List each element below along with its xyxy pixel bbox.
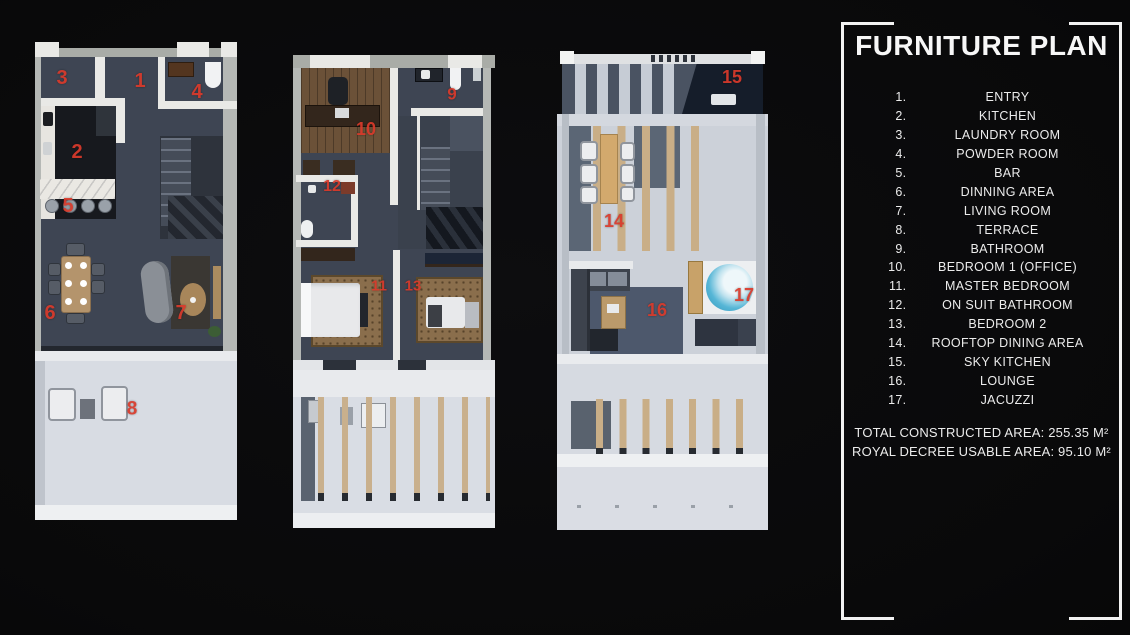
exterior-wall-right xyxy=(483,68,491,370)
shower-fixture xyxy=(473,68,481,81)
terrace-wall xyxy=(35,351,237,361)
jacuzzi-bench xyxy=(695,319,756,346)
exterior-wall-left xyxy=(562,114,569,354)
wall-pillar xyxy=(751,51,765,64)
legend-item: 11.MASTER BEDROOM xyxy=(865,277,1099,296)
legend-item-number: 3. xyxy=(865,128,917,142)
ottoman xyxy=(590,329,618,351)
exterior-wall-left xyxy=(293,68,301,370)
legend-title: FURNITURE PLAN xyxy=(841,30,1122,62)
tv-console xyxy=(213,266,221,319)
legend-item-label: BEDROOM 1 (OFFICE) xyxy=(917,260,1099,274)
legend-item: 6.DINNING AREA xyxy=(865,182,1099,201)
legend-item-label: TERRACE xyxy=(917,223,1099,237)
terrace-lower-floor xyxy=(557,467,768,530)
legend-item-label: BATHROOM xyxy=(917,242,1099,256)
wall-pillar xyxy=(448,55,482,68)
dining-chair xyxy=(91,280,105,294)
toilet xyxy=(205,62,221,88)
stair-landing xyxy=(450,116,483,151)
plate xyxy=(65,262,72,269)
legend-item: 17.JACUZZI xyxy=(865,390,1099,409)
legend-item-number: 14. xyxy=(865,336,917,350)
area-summary: TOTAL CONSTRUCTED AREA: 255.35 M² ROYAL … xyxy=(841,423,1122,461)
legend-item: 9.BATHROOM xyxy=(865,239,1099,258)
legend-item-label: BAR xyxy=(917,166,1099,180)
legend-item-label: POWDER ROOM xyxy=(917,147,1099,161)
sofa-cushion xyxy=(608,272,627,286)
room-number-label: 1 xyxy=(134,71,145,91)
legend-item-number: 13. xyxy=(865,317,917,331)
wall-pillar xyxy=(560,51,574,64)
terrace-floor xyxy=(35,361,237,505)
rooftop-dining-table xyxy=(600,134,618,204)
room-number-label: 16 xyxy=(647,301,667,319)
legend-item: 12.ON SUIT BATHROOM xyxy=(865,296,1099,315)
legend-item: 8.TERRACE xyxy=(865,220,1099,239)
legend-item-number: 12. xyxy=(865,298,917,312)
roof-floor-band xyxy=(557,114,768,126)
pergola-beam-tips xyxy=(318,493,490,501)
legend-item-number: 17. xyxy=(865,393,917,407)
legend-item-number: 8. xyxy=(865,223,917,237)
bath-sink xyxy=(421,70,430,79)
powder-vanity xyxy=(168,62,194,77)
legend-item-label: SKY KITCHEN xyxy=(917,355,1099,369)
wall-bathroom-vert xyxy=(390,68,398,205)
sofa-vertical xyxy=(571,269,590,351)
furniture-plan-canvas: 31425678 xyxy=(0,0,1130,635)
bedroom2-console xyxy=(425,253,483,267)
rooftop-chair xyxy=(620,142,635,161)
pergola-beams xyxy=(318,397,490,501)
rooftop-chair xyxy=(620,164,635,184)
room-number-label: 12 xyxy=(323,179,341,195)
plate xyxy=(65,280,72,287)
sky-kitchen-sink xyxy=(711,94,736,105)
frame-stub-bottom-right xyxy=(1069,617,1122,620)
legend-item-number: 9. xyxy=(865,242,917,256)
frame-stub-top-left xyxy=(841,22,894,25)
bed-pillow xyxy=(465,302,479,328)
floor-plan-roof: 15141617 xyxy=(557,50,768,530)
legend-item: 13.BEDROOM 2 xyxy=(865,315,1099,334)
door-gap xyxy=(323,360,356,370)
legend-item-number: 7. xyxy=(865,204,917,218)
usable-area-line: ROYAL DECREE USABLE AREA: 95.10 M² xyxy=(841,442,1122,461)
legend-item: 15.SKY KITCHEN xyxy=(865,352,1099,371)
dining-chair xyxy=(48,280,61,295)
legend-item-number: 16. xyxy=(865,374,917,388)
terrace-white-band xyxy=(557,454,768,467)
legend-item: 1.ENTRY xyxy=(865,88,1099,107)
legend-item-number: 2. xyxy=(865,109,917,123)
wall-pillar xyxy=(221,42,237,57)
room-number-label: 4 xyxy=(191,82,202,102)
door-gap xyxy=(398,360,426,370)
coffee-table-center xyxy=(190,297,196,303)
bar-stool xyxy=(45,199,59,213)
room-number-label: 10 xyxy=(356,120,376,138)
dining-chair xyxy=(66,313,85,324)
dresser xyxy=(301,248,355,261)
plate xyxy=(80,298,87,305)
legend-item-number: 1. xyxy=(865,90,917,104)
rooftop-chair xyxy=(620,186,635,202)
roof-vent-dashes xyxy=(651,55,697,62)
terrace-side-table xyxy=(80,399,95,419)
table-paper xyxy=(607,304,619,313)
terrace-chair xyxy=(101,386,128,421)
room-number-label: 17 xyxy=(734,286,754,304)
legend-item-label: LOUNGE xyxy=(917,374,1099,388)
legend-panel: FURNITURE PLAN 1.ENTRY2.KITCHEN3.LAUNDRY… xyxy=(841,22,1122,620)
wall-pillar xyxy=(177,42,209,57)
rooftop-chair xyxy=(580,186,598,204)
legend-item-label: LIVING ROOM xyxy=(917,204,1099,218)
dining-chair xyxy=(48,263,61,276)
legend-item-label: JACUZZI xyxy=(917,393,1099,407)
room-number-label: 15 xyxy=(722,68,742,86)
exterior-wall-right xyxy=(756,114,765,354)
pergola-slats xyxy=(575,64,680,114)
legend-item: 5.BAR xyxy=(865,164,1099,183)
frame-stub-top-right xyxy=(1069,22,1122,25)
total-area-line: TOTAL CONSTRUCTED AREA: 255.35 M² xyxy=(841,423,1122,442)
legend-item-label: ON SUIT BATHROOM xyxy=(917,298,1099,312)
frame-line-left xyxy=(841,22,844,620)
room-number-label: 6 xyxy=(44,303,55,323)
stair-winder xyxy=(426,207,483,249)
bed-bench xyxy=(360,293,368,327)
room-number-label: 13 xyxy=(405,279,422,294)
legend-item-number: 10. xyxy=(865,260,917,274)
floor-plan-ground: 31425678 xyxy=(35,40,237,520)
room-number-label: 8 xyxy=(127,400,138,419)
legend-item-label: LAUNDRY ROOM xyxy=(917,128,1099,142)
bar-stool xyxy=(81,199,95,213)
wall-kitchen-top xyxy=(41,98,125,106)
legend-item-label: ROOFTOP DINING AREA xyxy=(917,336,1099,350)
office-chair xyxy=(328,77,348,105)
plate xyxy=(65,298,72,305)
frame-stub-bottom-left xyxy=(841,617,894,620)
room-number-label: 11 xyxy=(371,279,387,294)
room-number-label: 3 xyxy=(56,68,67,88)
floor-plan-second: 910121113 xyxy=(288,55,500,528)
legend-item-number: 5. xyxy=(865,166,917,180)
roof-bottom-wall xyxy=(557,354,768,364)
bed-pillow xyxy=(301,283,311,337)
room-number-label: 9 xyxy=(447,86,456,103)
cooktop xyxy=(43,112,53,126)
kitchen-sink xyxy=(43,142,52,155)
frame-line-right xyxy=(1119,22,1122,620)
onsuite-sink xyxy=(308,185,316,193)
bathtub xyxy=(301,220,313,238)
legend-item-label: ENTRY xyxy=(917,90,1099,104)
terrace-tick-marks xyxy=(577,505,752,508)
bar-counter xyxy=(40,179,115,199)
plant xyxy=(208,326,221,337)
terrace-chair xyxy=(48,388,76,421)
wall-pillar xyxy=(310,55,370,68)
rooftop-chair xyxy=(580,164,598,184)
rooftop-chair xyxy=(580,141,598,161)
plate xyxy=(80,280,87,287)
room-number-label: 2 xyxy=(71,142,82,162)
onsuite-vanity xyxy=(341,182,355,194)
plate xyxy=(80,262,87,269)
bar-stool xyxy=(98,199,112,213)
stair-winder xyxy=(168,196,223,239)
laptop xyxy=(335,108,349,118)
wall-lounge-top xyxy=(566,261,633,269)
terrace-shade xyxy=(35,361,45,505)
stair-steps xyxy=(421,147,450,210)
legend-item: 4.POWDER ROOM xyxy=(865,145,1099,164)
wall-bedroom-divider xyxy=(393,250,400,360)
legend-item: 16.LOUNGE xyxy=(865,371,1099,390)
legend-item: 2.KITCHEN xyxy=(865,107,1099,126)
legend-item: 3.LAUNDRY ROOM xyxy=(865,126,1099,145)
balcony-bottom-band xyxy=(293,513,495,528)
legend-item-number: 4. xyxy=(865,147,917,161)
wall-pillar xyxy=(35,42,59,57)
legend-item-label: MASTER BEDROOM xyxy=(917,279,1099,293)
legend-item: 7.LIVING ROOM xyxy=(865,201,1099,220)
legend-item-label: BEDROOM 2 xyxy=(917,317,1099,331)
bed-throw xyxy=(428,305,442,327)
pergola-beams xyxy=(596,399,746,454)
legend-item-label: KITCHEN xyxy=(917,109,1099,123)
jacuzzi-deck xyxy=(688,261,703,314)
legend-item-number: 15. xyxy=(865,355,917,369)
legend-item-number: 6. xyxy=(865,185,917,199)
wall-laundry xyxy=(95,57,105,100)
kitchen-cabinet xyxy=(96,106,116,136)
wall-bathroom-horiz xyxy=(411,108,483,116)
terrace-bottom-band xyxy=(35,505,237,520)
balcony-roof-band xyxy=(293,370,495,397)
room-number-label: 5 xyxy=(62,196,73,216)
legend-item: 14.ROOFTOP DINING AREA xyxy=(865,334,1099,353)
dining-chair xyxy=(91,263,105,276)
stair-rail xyxy=(417,116,420,210)
dining-chair xyxy=(66,243,85,256)
legend-list: 1.ENTRY2.KITCHEN3.LAUNDRY ROOM4.POWDER R… xyxy=(865,88,1099,409)
legend-item: 10.BEDROOM 1 (OFFICE) xyxy=(865,258,1099,277)
room-number-label: 14 xyxy=(604,212,624,230)
legend-item-number: 11. xyxy=(865,279,917,293)
legend-item-label: DINNING AREA xyxy=(917,185,1099,199)
room-number-label: 7 xyxy=(175,303,186,323)
wall-onsuite-bottom xyxy=(296,240,358,247)
